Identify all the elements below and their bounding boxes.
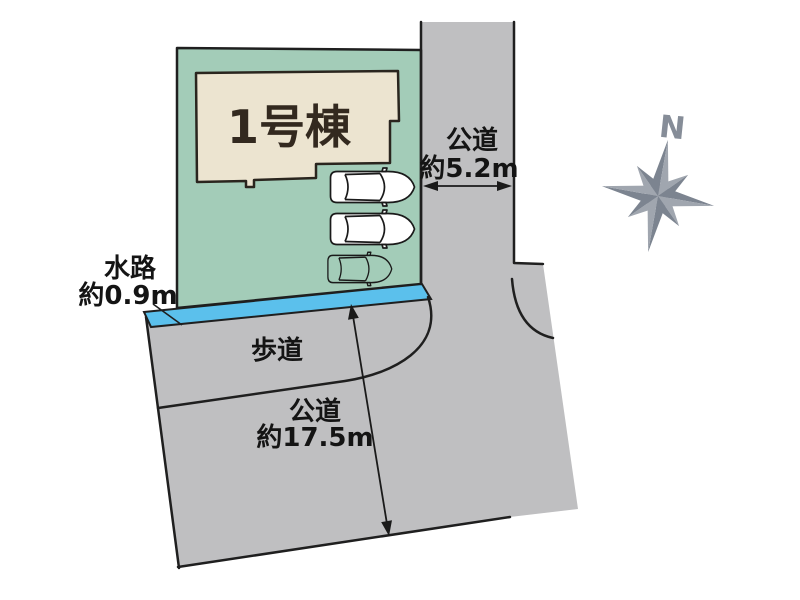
waterway-width-label: 約0.9m <box>78 280 177 311</box>
building-1-label: 1号棟 <box>227 100 352 154</box>
compass-star-icon <box>592 130 724 262</box>
site-plan-page: 1号棟 公道 約5.2m 水路 約0.9m 歩道 公道 約17.5m <box>0 0 800 600</box>
road-right-width-label: 約5.2m <box>419 153 518 184</box>
compass-north-label: N <box>657 109 687 148</box>
car-2 <box>331 210 415 248</box>
sidewalk-label: 歩道 <box>251 335 303 366</box>
site-plan-canvas: 1号棟 公道 約5.2m 水路 約0.9m 歩道 公道 約17.5m <box>0 0 800 600</box>
road-right-name-label: 公道 <box>446 125 498 156</box>
road-bottom-length-label: 約17.5m <box>256 422 373 453</box>
car-1 <box>331 168 415 206</box>
compass-rose <box>592 130 724 262</box>
road-right-right-edge <box>514 22 543 264</box>
waterway-name-label: 水路 <box>104 253 157 284</box>
